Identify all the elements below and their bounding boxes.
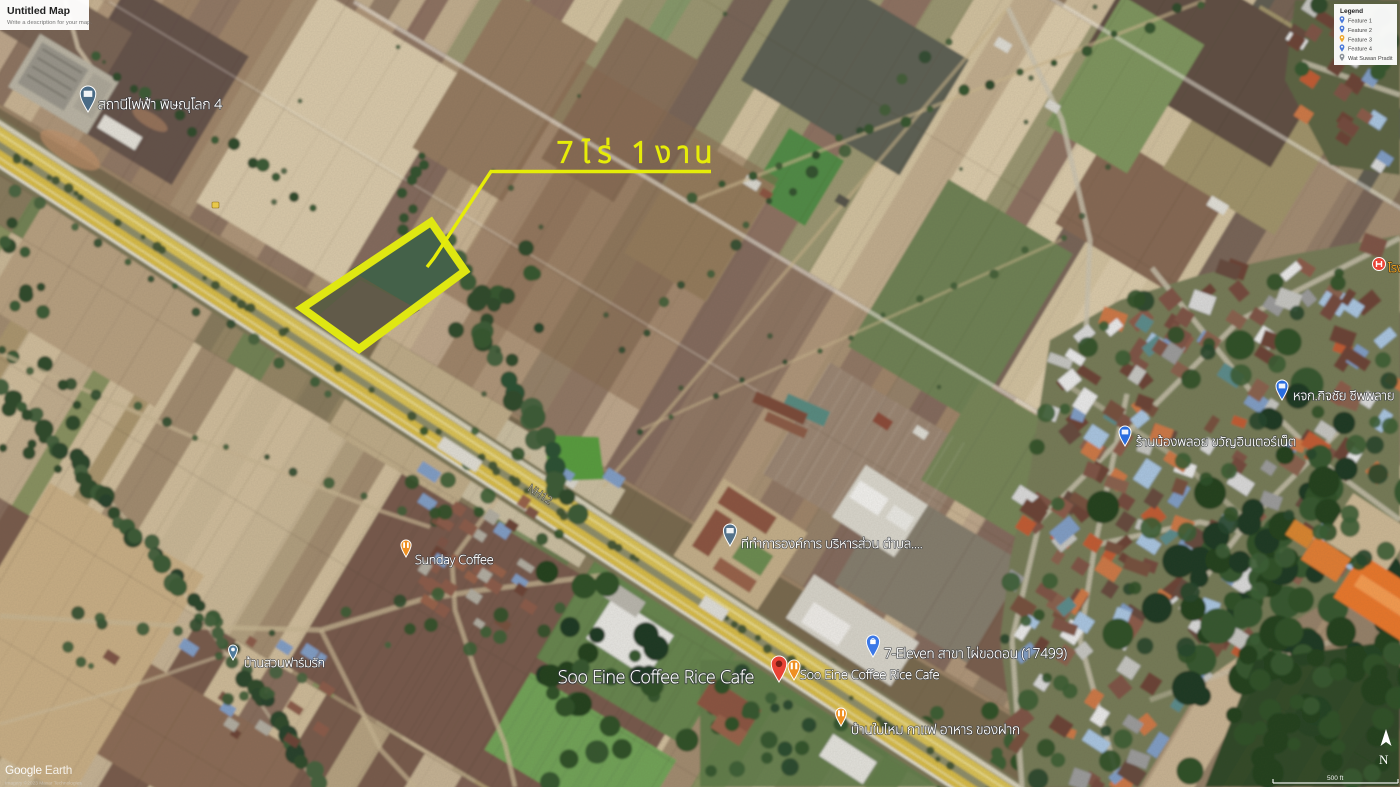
svg-text:Wat Suwan Pradit: Wat Suwan Pradit (1348, 56, 1393, 62)
svg-text:Feature 3: Feature 3 (1348, 37, 1372, 43)
svg-text:Feature 1: Feature 1 (1348, 19, 1372, 25)
svg-text:Write a description for your m: Write a description for your map. (7, 20, 92, 26)
svg-text:Feature 2: Feature 2 (1348, 28, 1372, 34)
svg-text:N: N (1379, 752, 1389, 767)
svg-text:Legend: Legend (1340, 8, 1363, 15)
svg-text:Feature 4: Feature 4 (1348, 47, 1372, 53)
svg-text:Untitled Map: Untitled Map (7, 5, 70, 17)
svg-text:Google Earth: Google Earth (5, 763, 72, 777)
svg-text:500 ft: 500 ft (1327, 775, 1343, 782)
svg-text:Imagery ©2023 Maxar Technologi: Imagery ©2023 Maxar Technologies (5, 780, 82, 787)
